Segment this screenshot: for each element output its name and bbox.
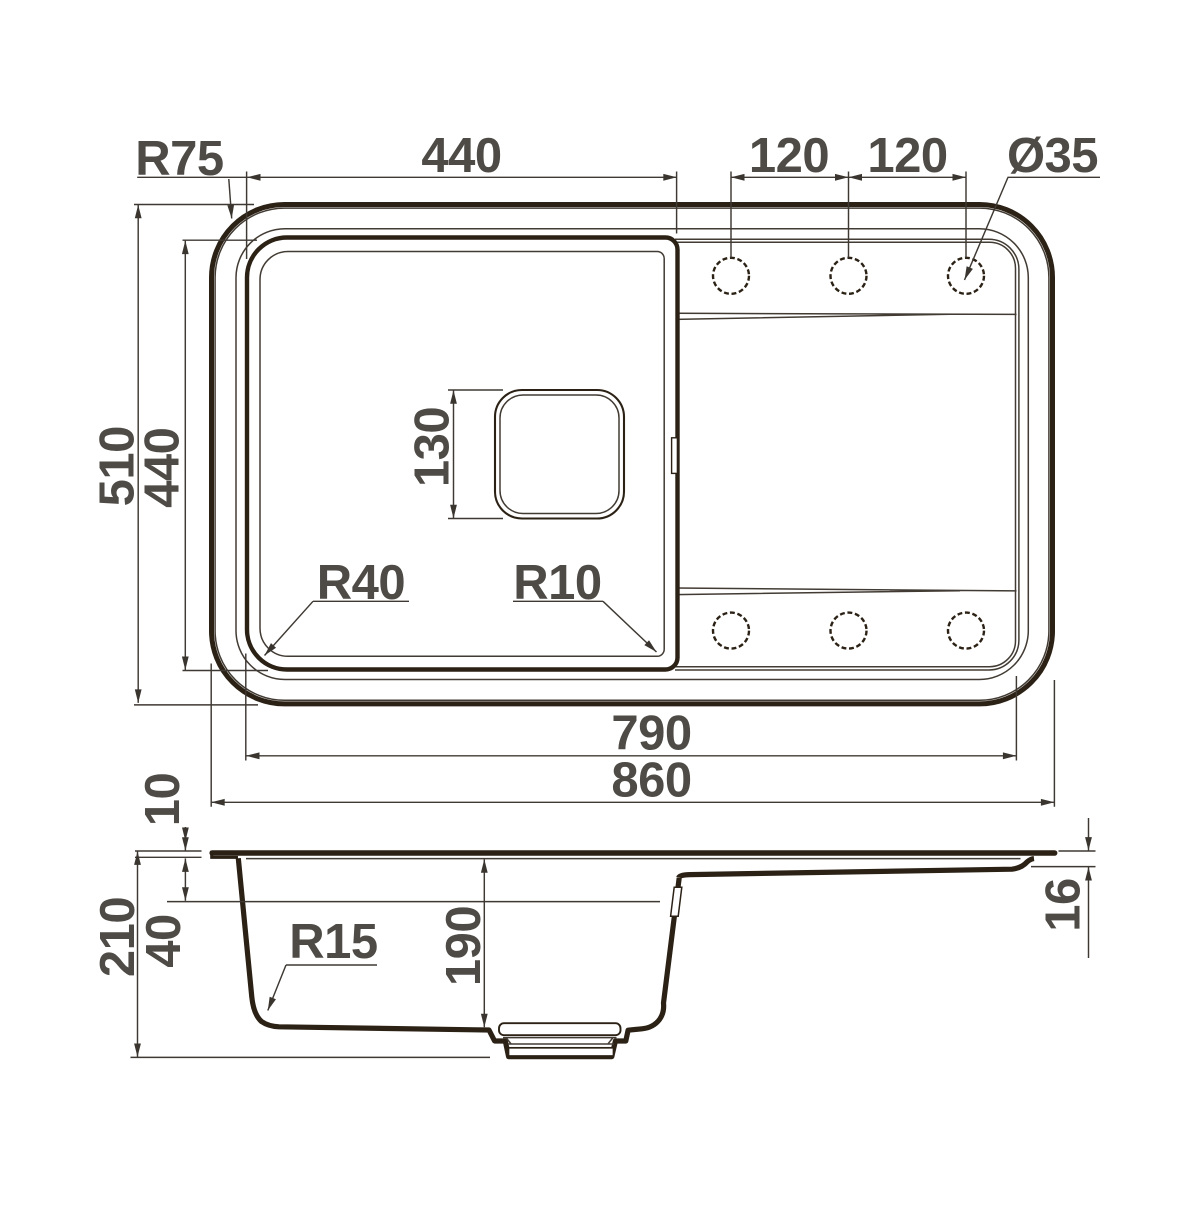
svg-text:440: 440	[136, 428, 190, 508]
svg-text:40: 40	[137, 914, 191, 968]
svg-text:Ø35: Ø35	[1007, 129, 1098, 183]
svg-text:790: 790	[611, 707, 691, 761]
svg-text:16: 16	[1037, 878, 1091, 932]
svg-text:440: 440	[421, 129, 501, 183]
svg-text:120: 120	[867, 129, 947, 183]
svg-text:10: 10	[136, 773, 190, 827]
svg-text:190: 190	[437, 906, 491, 986]
svg-text:860: 860	[611, 754, 691, 808]
svg-text:130: 130	[406, 407, 460, 487]
svg-text:120: 120	[749, 129, 829, 183]
svg-text:R15: R15	[289, 915, 377, 969]
